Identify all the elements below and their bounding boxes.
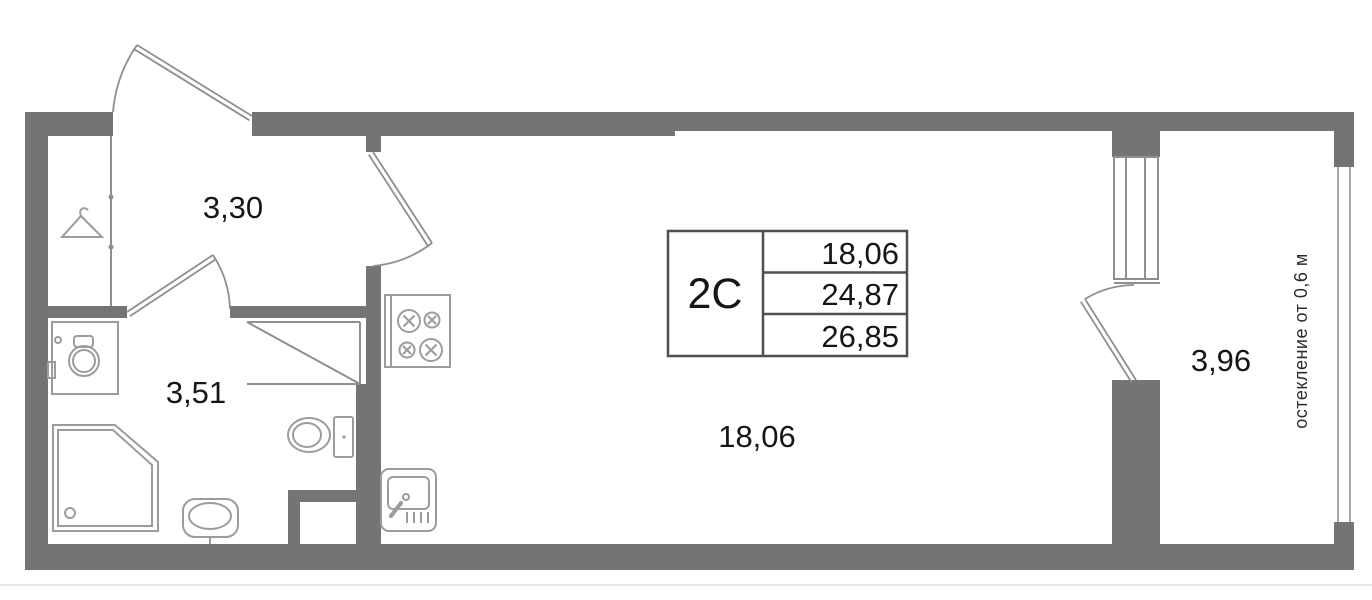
- balcony-area-label: 3,96: [1191, 343, 1251, 378]
- stamp-area-apartment: 24,87: [821, 277, 899, 312]
- stamp-area-living: 18,06: [821, 236, 899, 271]
- wall-segment: [48, 306, 127, 318]
- duct-niche-wall: [288, 490, 300, 544]
- wall-segment: [230, 306, 366, 318]
- sink-bowl: [388, 477, 429, 509]
- washer-body: [52, 322, 118, 394]
- balcony-glazing: [1338, 167, 1350, 522]
- wall-segment: [25, 112, 48, 570]
- wall-segment: [25, 544, 1354, 570]
- wall-segment: [366, 136, 381, 152]
- living-room-door-arc: [373, 243, 432, 266]
- sink-tap: [403, 494, 409, 500]
- bathroom-door-arc: [213, 255, 230, 309]
- wall-segment: [252, 112, 675, 136]
- balcony-door-leaf: [1085, 299, 1136, 380]
- shower-outer: [53, 425, 158, 531]
- panel-diagonal: [247, 322, 360, 384]
- stamp-unit-type: 2С: [688, 270, 743, 318]
- balcony-pier: [1112, 131, 1160, 157]
- washbasin-icon: [183, 499, 238, 544]
- wall-segment: [675, 112, 1354, 131]
- toilet-icon: [288, 417, 353, 457]
- balcony-window: [1114, 157, 1160, 283]
- living-room-area-label: 18,06: [718, 419, 796, 454]
- bottom-divider-line: [0, 584, 1372, 586]
- entrance-door-leaf: [137, 45, 252, 116]
- stove-icon: [385, 295, 450, 367]
- washer-knob: [55, 337, 61, 343]
- balcony-wall: [1112, 380, 1160, 544]
- bathroom-door-leaf: [130, 259, 216, 316]
- washing-machine-icon: [48, 322, 118, 394]
- washer-drum-inner: [73, 350, 95, 372]
- hanger-body: [62, 216, 102, 237]
- wall-segment: [356, 384, 366, 544]
- living-room-door-leaf: [369, 155, 428, 246]
- stamp-area-total: 26,85: [821, 319, 899, 354]
- toilet-button: [342, 435, 345, 438]
- shower-drain: [65, 508, 75, 518]
- basin-inner: [189, 503, 231, 529]
- wall-stub: [1334, 522, 1354, 544]
- partition-dot: [109, 245, 114, 250]
- hanger-icon: [62, 208, 102, 237]
- kitchen-sink-icon: [381, 469, 436, 531]
- closet-partition: [109, 136, 114, 306]
- glazing-note: остекление от 0,6 м: [1291, 253, 1311, 428]
- balcony-door-arc: [1085, 285, 1134, 299]
- wall-segment: [366, 266, 381, 544]
- hanger-hook: [80, 208, 88, 216]
- hallway-area-label: 3,30: [203, 190, 263, 225]
- entrance-door-leaf: [134, 49, 249, 120]
- door-panel-diagonal: [247, 322, 360, 384]
- bathroom-door: [127, 255, 230, 316]
- living-room-door-leaf: [373, 152, 432, 243]
- living-room-door: [369, 152, 432, 266]
- window-frame: [1114, 157, 1158, 279]
- floor-plan-svg: 3,30 3,51 18,06 3,96 2С 18,06 24,87 26,8…: [0, 0, 1372, 600]
- shower-cabin-icon: [53, 425, 158, 531]
- floor-plan-page: 3,30 3,51 18,06 3,96 2С 18,06 24,87 26,8…: [0, 0, 1372, 600]
- entrance-door-arc: [113, 45, 137, 112]
- walls: [25, 112, 1354, 570]
- partition-dot: [109, 195, 114, 200]
- bathroom-door-leaf: [127, 255, 213, 312]
- unit-stamp: 2С 18,06 24,87 26,85: [668, 231, 907, 356]
- bathroom-area-label: 3,51: [166, 375, 226, 410]
- entrance-door: [113, 45, 252, 120]
- balcony-door: [1081, 285, 1136, 383]
- balcony-door-leaf: [1081, 302, 1132, 383]
- toilet-bowl-inner: [293, 423, 321, 447]
- wall-stub: [1334, 131, 1354, 167]
